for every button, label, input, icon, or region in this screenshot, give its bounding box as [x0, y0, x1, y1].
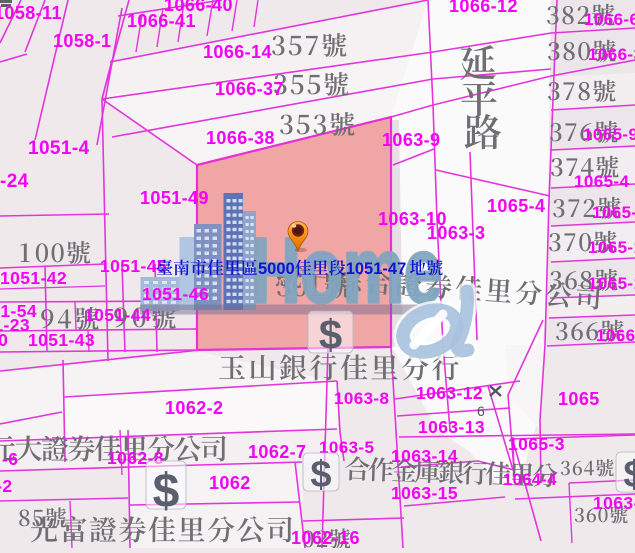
svg-text:1051-49: 1051-49	[140, 188, 209, 208]
svg-text:1063-14: 1063-14	[391, 446, 458, 466]
svg-text:1062: 1062	[209, 473, 251, 493]
svg-text:1065: 1065	[558, 389, 600, 409]
svg-text:$: $	[153, 465, 180, 518]
svg-text:1063-4: 1063-4	[593, 493, 635, 513]
svg-text:1063-3: 1063-3	[427, 223, 485, 243]
svg-text:1066-6: 1066-6	[584, 10, 635, 29]
svg-text:1051-42: 1051-42	[0, 268, 67, 288]
svg-text:$: $	[623, 454, 635, 496]
svg-text:1051-46: 1051-46	[142, 284, 209, 304]
svg-text:1065-1: 1065-1	[588, 238, 635, 257]
svg-text:1062-16: 1062-16	[291, 528, 360, 548]
svg-text:1066-3: 1066-3	[588, 45, 635, 64]
svg-text:1051-4: 1051-4	[28, 138, 90, 159]
svg-text:50: 50	[0, 330, 8, 350]
svg-text:5000: 5000	[258, 260, 295, 278]
svg-text:1066-37: 1066-37	[215, 79, 284, 99]
svg-text:1063-9: 1063-9	[382, 130, 440, 150]
svg-text:1058-1: 1058-1	[53, 31, 111, 51]
svg-text:1065-3: 1065-3	[508, 434, 565, 454]
svg-text:1063-15: 1063-15	[391, 483, 458, 503]
svg-text:1066-38: 1066-38	[206, 128, 275, 148]
svg-text:1066-14: 1066-14	[203, 42, 272, 62]
svg-text:1065-4: 1065-4	[487, 196, 545, 216]
svg-text:-6: -6	[2, 449, 18, 469]
svg-text:1051-45: 1051-45	[100, 256, 167, 276]
svg-text:6: 6	[477, 403, 485, 419]
svg-text:1065-4: 1065-4	[574, 172, 629, 191]
svg-text:1051-47: 1051-47	[346, 260, 407, 278]
svg-text:1064-4: 1064-4	[503, 471, 557, 489]
svg-text:1063-12: 1063-12	[416, 383, 483, 403]
svg-text:1058-11: 1058-11	[0, 3, 62, 23]
svg-text:$: $	[310, 454, 331, 496]
svg-text:1051-44: 1051-44	[84, 305, 151, 325]
svg-text:1-2: 1-2	[0, 476, 13, 496]
svg-text:1051-43: 1051-43	[28, 330, 95, 350]
svg-text:1063-13: 1063-13	[418, 417, 485, 437]
svg-text:1063-8: 1063-8	[334, 389, 389, 408]
svg-text:1066-40: 1066-40	[164, 0, 233, 15]
svg-text:1066-12: 1066-12	[449, 0, 518, 16]
svg-text:-24: -24	[0, 171, 29, 192]
svg-text:1062-7: 1062-7	[248, 442, 306, 462]
svg-text:$: $	[319, 311, 342, 358]
svg-text:1065-9: 1065-9	[583, 125, 635, 144]
svg-text:1065-3: 1065-3	[592, 203, 635, 222]
svg-text:1062-2: 1062-2	[165, 398, 223, 418]
svg-text:1065-1: 1065-1	[588, 274, 635, 293]
svg-text:1066-: 1066-	[596, 326, 635, 345]
